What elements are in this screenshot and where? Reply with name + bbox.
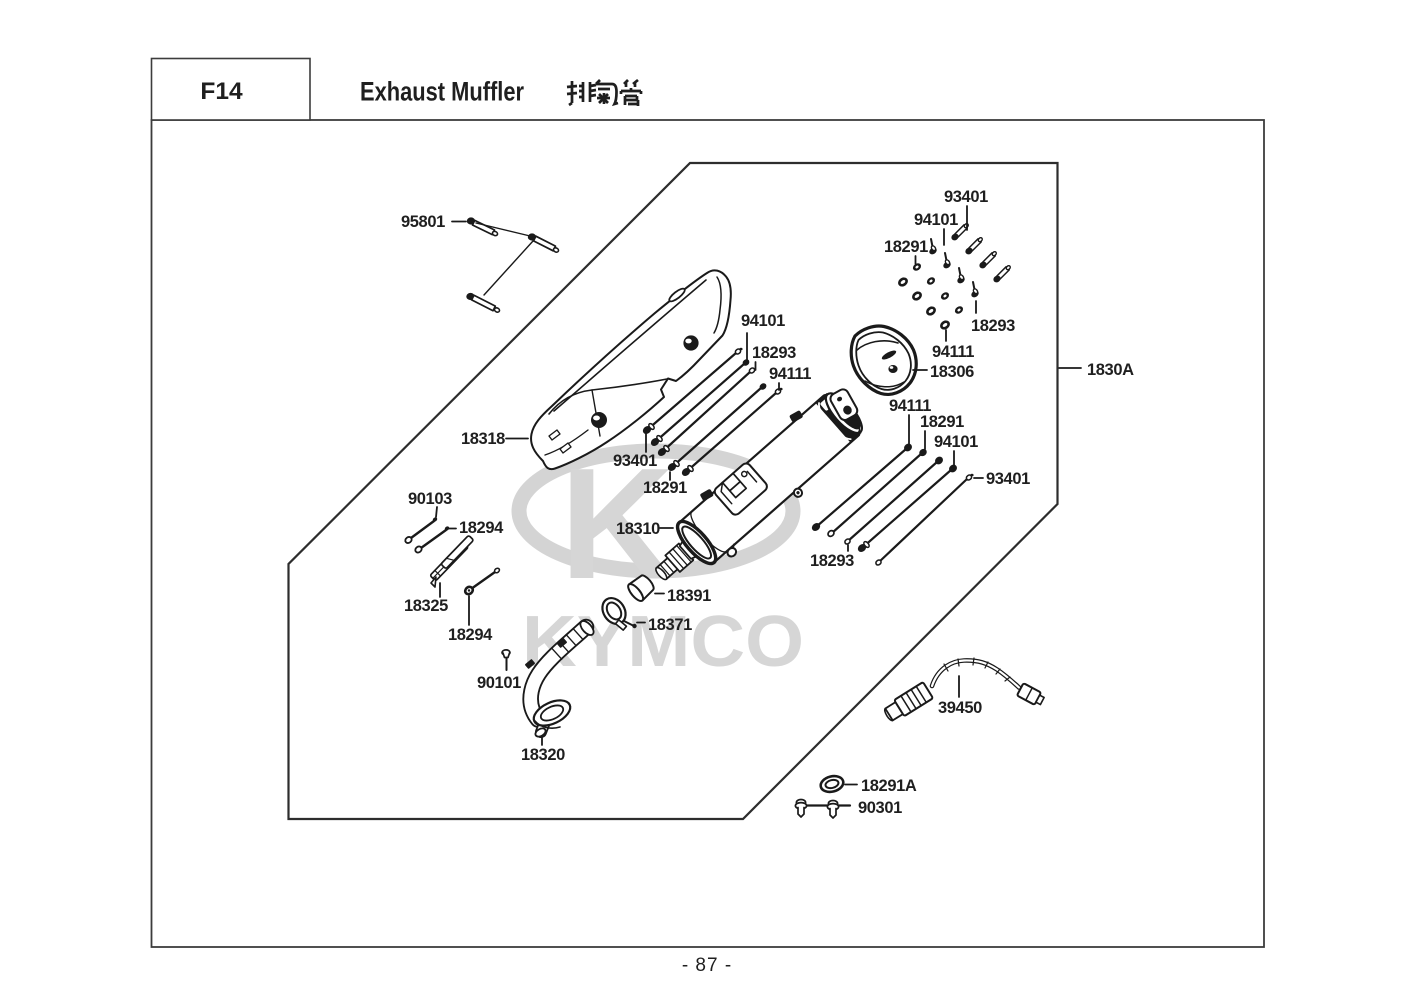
svg-text:18293: 18293 [971,317,1015,335]
svg-text:18294: 18294 [448,626,493,644]
svg-text:94101: 94101 [741,312,785,330]
svg-text:18294: 18294 [459,519,504,537]
svg-text:94101: 94101 [934,433,978,451]
svg-text:18371: 18371 [648,616,692,634]
svg-text:18320: 18320 [521,746,565,764]
svg-text:94111: 94111 [932,343,974,361]
svg-text:18291A: 18291A [861,777,917,795]
svg-text:93401: 93401 [944,188,988,206]
svg-text:18291: 18291 [643,479,687,497]
svg-text:Exhaust Muffler: Exhaust Muffler [360,77,524,107]
svg-text:- 87 -: - 87 - [682,955,732,976]
svg-text:93401: 93401 [986,470,1030,488]
svg-text:1830A: 1830A [1087,361,1134,379]
svg-text:94111: 94111 [769,365,811,383]
svg-text:93401: 93401 [613,452,657,470]
svg-text:39450: 39450 [938,699,982,717]
svg-text:90101: 90101 [477,674,521,692]
svg-text:18318: 18318 [461,430,505,448]
svg-text:18306: 18306 [930,363,974,381]
svg-text:18293: 18293 [810,552,854,570]
svg-text:90301: 90301 [858,799,902,817]
svg-text:18293: 18293 [752,344,796,362]
svg-text:18291: 18291 [884,238,928,256]
svg-text:18391: 18391 [667,587,711,605]
svg-text:18325: 18325 [404,597,448,615]
svg-text:18310: 18310 [616,520,660,538]
svg-text:95801: 95801 [401,213,445,231]
svg-text:94101: 94101 [914,211,958,229]
svg-text:90103: 90103 [408,490,452,508]
svg-text:F14: F14 [200,78,243,105]
svg-text:18291: 18291 [920,413,964,431]
